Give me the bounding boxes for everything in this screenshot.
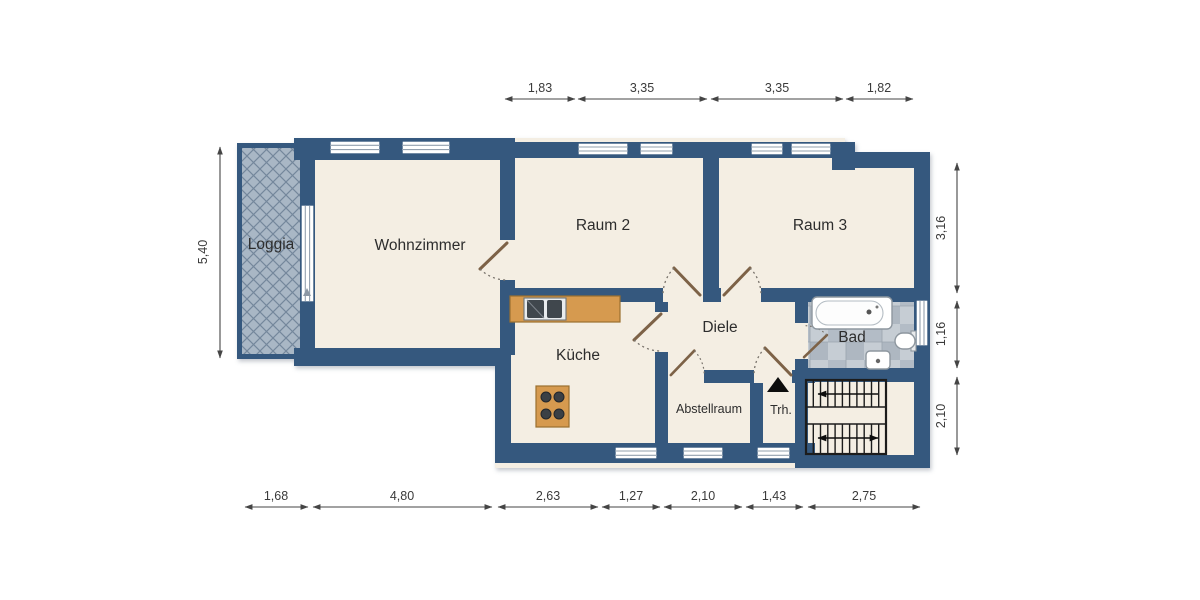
floorplan-page: Loggia Wohnzimmer Raum 2 Raum 3 Küche Di… bbox=[0, 0, 1200, 600]
toilet-icon bbox=[895, 331, 916, 351]
window bbox=[402, 141, 450, 154]
dimension-value: 2,10 bbox=[691, 489, 715, 503]
kitchen-counter bbox=[510, 296, 620, 322]
dimension-value: 1,27 bbox=[619, 489, 643, 503]
dimension-value: 4,80 bbox=[390, 489, 414, 503]
dimension-value: 3,35 bbox=[630, 81, 654, 95]
dimension-value: 2,75 bbox=[852, 489, 876, 503]
room-label-raum2: Raum 2 bbox=[576, 217, 630, 234]
floorplan-drawing bbox=[240, 138, 931, 468]
window bbox=[751, 143, 783, 155]
dimension-value: 1,68 bbox=[264, 489, 288, 503]
window bbox=[330, 141, 380, 154]
dimensions-top: 1,83 3,35 3,35 1,82 bbox=[505, 81, 913, 99]
bathtub-icon bbox=[812, 297, 892, 329]
room-label-kueche: Küche bbox=[556, 347, 600, 364]
floorplan-svg: Loggia Wohnzimmer Raum 2 Raum 3 Küche Di… bbox=[0, 0, 1200, 600]
room-label-wohnzimmer: Wohnzimmer bbox=[374, 237, 465, 254]
room-label-loggia: Loggia bbox=[248, 236, 295, 253]
room-label-raum3: Raum 3 bbox=[793, 217, 847, 234]
window bbox=[615, 447, 657, 459]
window bbox=[683, 447, 723, 459]
room-label-abstellraum: Abstellraum bbox=[676, 402, 742, 416]
stove-icon bbox=[536, 386, 569, 427]
dimensions-left: 5,40 bbox=[196, 147, 220, 358]
dimension-value: 1,43 bbox=[762, 489, 786, 503]
window bbox=[640, 143, 673, 155]
room-label-diele: Diele bbox=[702, 319, 737, 336]
window bbox=[578, 143, 628, 155]
dimensions-bottom: 1,68 4,80 2,63 1,27 2,10 1,43 2,75 bbox=[245, 489, 920, 507]
dimension-value: 1,83 bbox=[528, 81, 552, 95]
window bbox=[791, 143, 831, 155]
balcony-door-window bbox=[301, 205, 314, 302]
dimension-value: 5,40 bbox=[196, 240, 210, 264]
dimension-value: 1,16 bbox=[934, 322, 948, 346]
dimension-value: 2,63 bbox=[536, 489, 560, 503]
room-label-bad: Bad bbox=[838, 329, 866, 346]
window bbox=[757, 447, 790, 459]
bathroom-window bbox=[916, 300, 928, 346]
dimension-value: 3,16 bbox=[934, 216, 948, 240]
dimension-value: 3,35 bbox=[765, 81, 789, 95]
dimensions-right: 3,16 1,16 2,10 bbox=[934, 163, 957, 455]
dimension-value: 2,10 bbox=[934, 404, 948, 428]
washbasin-icon bbox=[866, 351, 890, 369]
dimension-value: 1,82 bbox=[867, 81, 891, 95]
room-label-treppenhaus: Trh. bbox=[770, 403, 792, 417]
